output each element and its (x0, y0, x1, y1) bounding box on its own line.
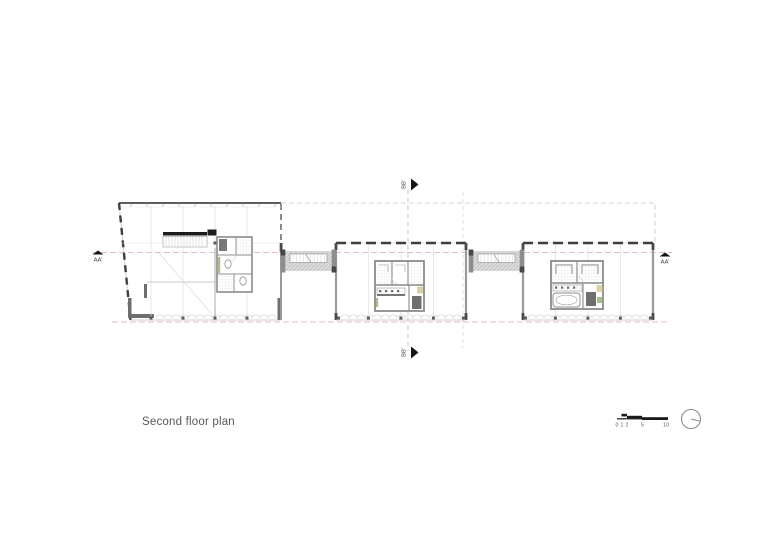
scale-tick-1: 1 (621, 423, 624, 429)
section-marker-bb-bottom: BB' (402, 347, 419, 359)
section-arrow-icon (411, 347, 419, 359)
scale-tick-0: 0 (616, 423, 619, 429)
scale-tick-2: 2 (626, 423, 629, 429)
left-wing-core (217, 237, 252, 292)
scale-tick-10: 10 (663, 423, 669, 429)
floor-plan-drawing: BB' BB' AA' AA' Second floor plan 0 1 2 … (0, 0, 768, 543)
section-label-bb-top: BB' (402, 180, 408, 189)
scale-tick-5: 5 (641, 423, 644, 429)
floor-plan-sheet: BB' BB' AA' AA' Second floor plan 0 1 2 … (0, 0, 768, 543)
bridge-connector-1 (281, 250, 337, 273)
bridge-connector-2 (469, 250, 525, 273)
section-label-aa-right: AA' (661, 260, 670, 266)
section-label-bb-bottom: BB' (402, 348, 408, 357)
section-label-aa-left: AA' (94, 258, 103, 264)
north-arrow-icon (682, 410, 701, 429)
section-marker-aa-right: AA' (660, 253, 671, 266)
section-arrow-icon (660, 253, 671, 257)
drawing-title: Second floor plan (142, 416, 235, 428)
right-wing-core (551, 261, 603, 309)
left-wing (119, 203, 283, 320)
scale-bar: 0 1 2 5 10 (616, 414, 669, 429)
section-marker-bb-top: BB' (402, 179, 419, 191)
left-wing-stair (163, 230, 217, 248)
middle-wing-core (375, 261, 424, 311)
section-arrow-icon (411, 179, 419, 191)
